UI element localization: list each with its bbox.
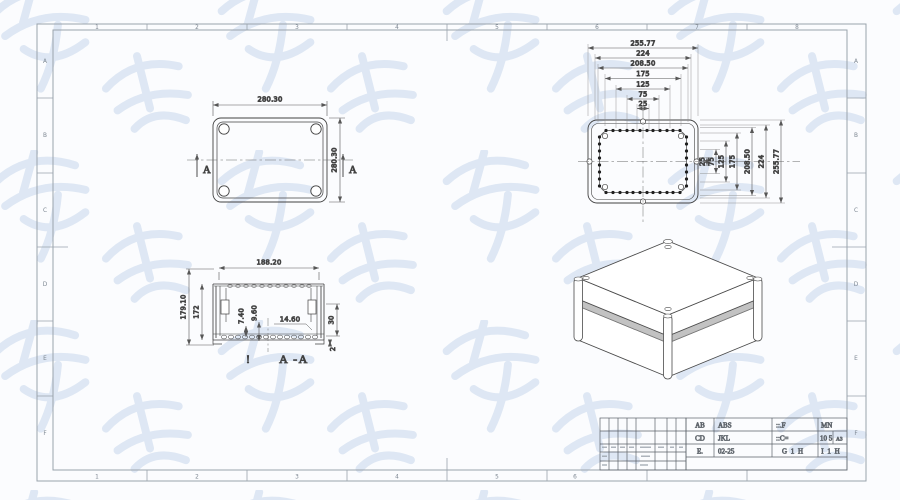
zone-label: 5: [495, 25, 499, 31]
zone-label: A: [854, 59, 858, 65]
section-arrow-label: A: [349, 165, 357, 176]
section-note: !: [246, 352, 250, 366]
watermark-layer: [0, 0, 900, 500]
title-cell: E.: [697, 448, 703, 456]
zone-label: F: [854, 431, 857, 437]
zone-label: F: [43, 431, 46, 437]
zone-label: C: [43, 208, 47, 214]
zone-label: 3: [295, 25, 299, 31]
title-cell: ::C=: [776, 435, 789, 443]
dim-hole-top: 208.50: [631, 60, 656, 68]
section-arrow-label: A: [203, 165, 211, 176]
zone-label: A: [43, 59, 47, 65]
dim-hole-right: 175: [729, 155, 737, 169]
dim-top-view-height: 280.30: [331, 148, 339, 173]
title-cell: CD: [695, 435, 705, 443]
dim-hole-right: 75: [708, 157, 716, 166]
drawing-sheet: 1 2 3 4 5 6 7 8 1 2 3 4 5 6 A B C D E F …: [0, 0, 900, 500]
dim-section-width: 188.20: [257, 259, 282, 267]
zone-label: 2: [195, 475, 199, 481]
title-cell: JKL: [718, 435, 730, 443]
dim-hole-top: 75: [638, 91, 647, 99]
dim-hole-top: 175: [636, 70, 650, 78]
dim-section-base: 2: [329, 347, 337, 352]
zone-label: B: [854, 133, 858, 139]
title-cell: 02-25: [718, 448, 735, 456]
zone-label: 6: [595, 25, 599, 31]
zone-label: C: [854, 208, 858, 214]
zone-label: B: [43, 133, 47, 139]
zone-label: 6: [573, 475, 577, 481]
zone-label: 4: [395, 25, 399, 31]
title-cell: AB: [695, 422, 705, 430]
title-cell: ABS: [718, 422, 732, 430]
zone-label: 7: [695, 25, 699, 31]
zone-label: 3: [295, 475, 299, 481]
dim-section-height-inner: 172: [193, 305, 201, 319]
dim-section-rib-large: 9.60: [251, 305, 259, 321]
dim-section-boss: 14.60: [280, 316, 300, 324]
zone-label: 1: [95, 475, 99, 481]
title-cell: G 1 H: [782, 448, 804, 456]
zone-label: D: [43, 282, 48, 288]
dim-hole-top: 125: [636, 81, 650, 89]
dim-hole-top: 224: [636, 50, 650, 58]
dim-hole-top: 25: [638, 100, 647, 108]
title-cell-sheet-size: A3: [836, 437, 843, 443]
zone-label: E: [43, 356, 47, 362]
section-view-title: A -A: [279, 352, 309, 366]
dim-section-rib-small: 7.40: [238, 308, 246, 324]
title-cell: MN: [821, 422, 832, 430]
dim-hole-right: 125: [718, 155, 726, 169]
zone-label: 8: [795, 25, 799, 31]
dim-section-height-outer: 179.10: [180, 295, 188, 320]
zone-label: 1: [95, 25, 99, 31]
title-cell: 10 5: [820, 435, 833, 443]
dim-top-view-width: 280.30: [258, 96, 283, 104]
dim-hole-right: 255.77: [773, 149, 781, 174]
dim-hole-right: 224: [758, 155, 766, 169]
title-cell: ::.F: [776, 422, 786, 430]
zone-label: 2: [195, 25, 199, 31]
dim-hole-right: 208.50: [744, 149, 752, 174]
dim-section-lip: 30: [328, 315, 336, 324]
dim-hole-top: 255.77: [631, 40, 656, 48]
zone-label: E: [854, 356, 858, 362]
title-cell: I 1 H: [821, 448, 840, 456]
zone-label: 5: [495, 475, 499, 481]
drawing-canvas: 1 2 3 4 5 6 7 8 1 2 3 4 5 6 A B C D E F …: [0, 0, 900, 500]
zone-label: 4: [395, 475, 399, 481]
dim-hole-right: 25: [699, 157, 707, 166]
zone-label: D: [854, 282, 859, 288]
